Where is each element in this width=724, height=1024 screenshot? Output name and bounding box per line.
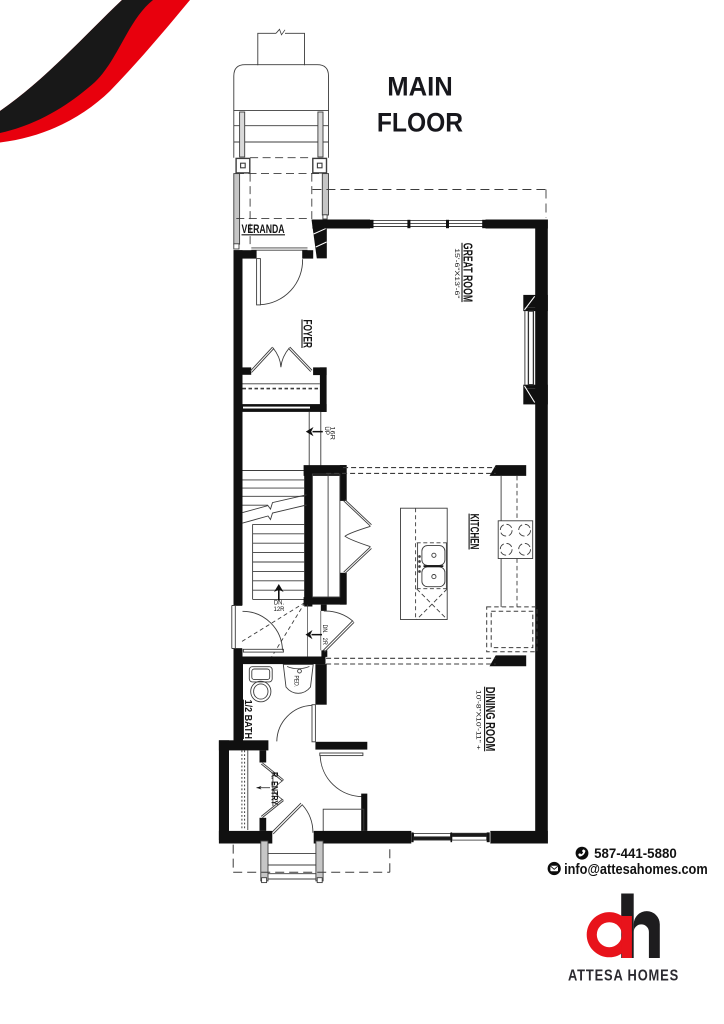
svg-text:2R: 2R [321, 638, 328, 645]
svg-text:FLOOR: FLOOR [377, 107, 463, 137]
svg-text:587-441-5880: 587-441-5880 [594, 845, 677, 861]
svg-text:ATTESA HOMES: ATTESA HOMES [568, 967, 679, 984]
svg-text:MAIN: MAIN [387, 72, 453, 102]
svg-text:UP: UP [323, 426, 329, 435]
svg-text:PED.: PED. [292, 676, 299, 688]
svg-text:12R: 12R [273, 607, 285, 613]
svg-text:VERANDA: VERANDA [242, 222, 285, 236]
svg-text:R. ENTRY: R. ENTRY [268, 772, 279, 805]
svg-text:DN.: DN. [274, 600, 285, 606]
svg-text:10'-8"X10'-11" +: 10'-8"X10'-11" + [475, 690, 482, 750]
svg-text:15'-6"X13'-6": 15'-6"X13'-6" [453, 248, 460, 299]
svg-text:info@attesahomes.com: info@attesahomes.com [564, 861, 708, 878]
svg-text:16R: 16R [328, 426, 334, 440]
svg-text:DN.: DN. [321, 625, 328, 634]
